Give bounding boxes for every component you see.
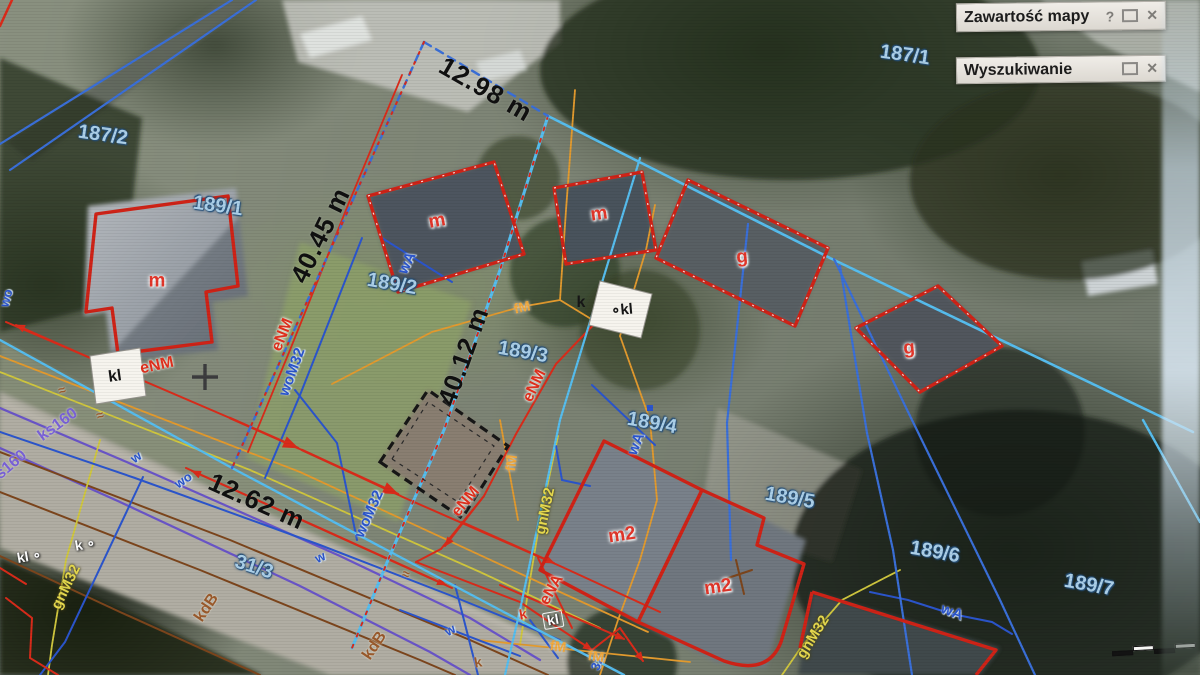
panel-title: Wyszukiwanie [964,60,1114,80]
gas-line [520,436,558,645]
cadastral-overlay [0,0,1200,675]
maximize-icon[interactable] [1122,9,1138,22]
close-icon[interactable]: ✕ [1146,7,1158,24]
help-icon[interactable]: ? [1106,8,1115,24]
power-arrow [462,522,554,563]
survey-cross-marker [192,364,218,390]
power-line [0,0,12,26]
panel-title: Zawartość mapy [964,7,1098,27]
water-line [592,385,655,445]
close-icon[interactable]: ✕ [1146,60,1158,77]
water-node [647,405,653,411]
panel-map-contents[interactable]: Zawartość mapy ? ✕ [956,1,1166,33]
panel-search[interactable]: Wyszukiwanie ✕ [956,55,1166,85]
maximize-icon[interactable] [1122,62,1138,75]
kl-symbol-box [90,348,146,404]
geoportal-map-view[interactable]: 12.98 m40.45 m40.12 m12.62 m187/2187/118… [0,0,1200,675]
